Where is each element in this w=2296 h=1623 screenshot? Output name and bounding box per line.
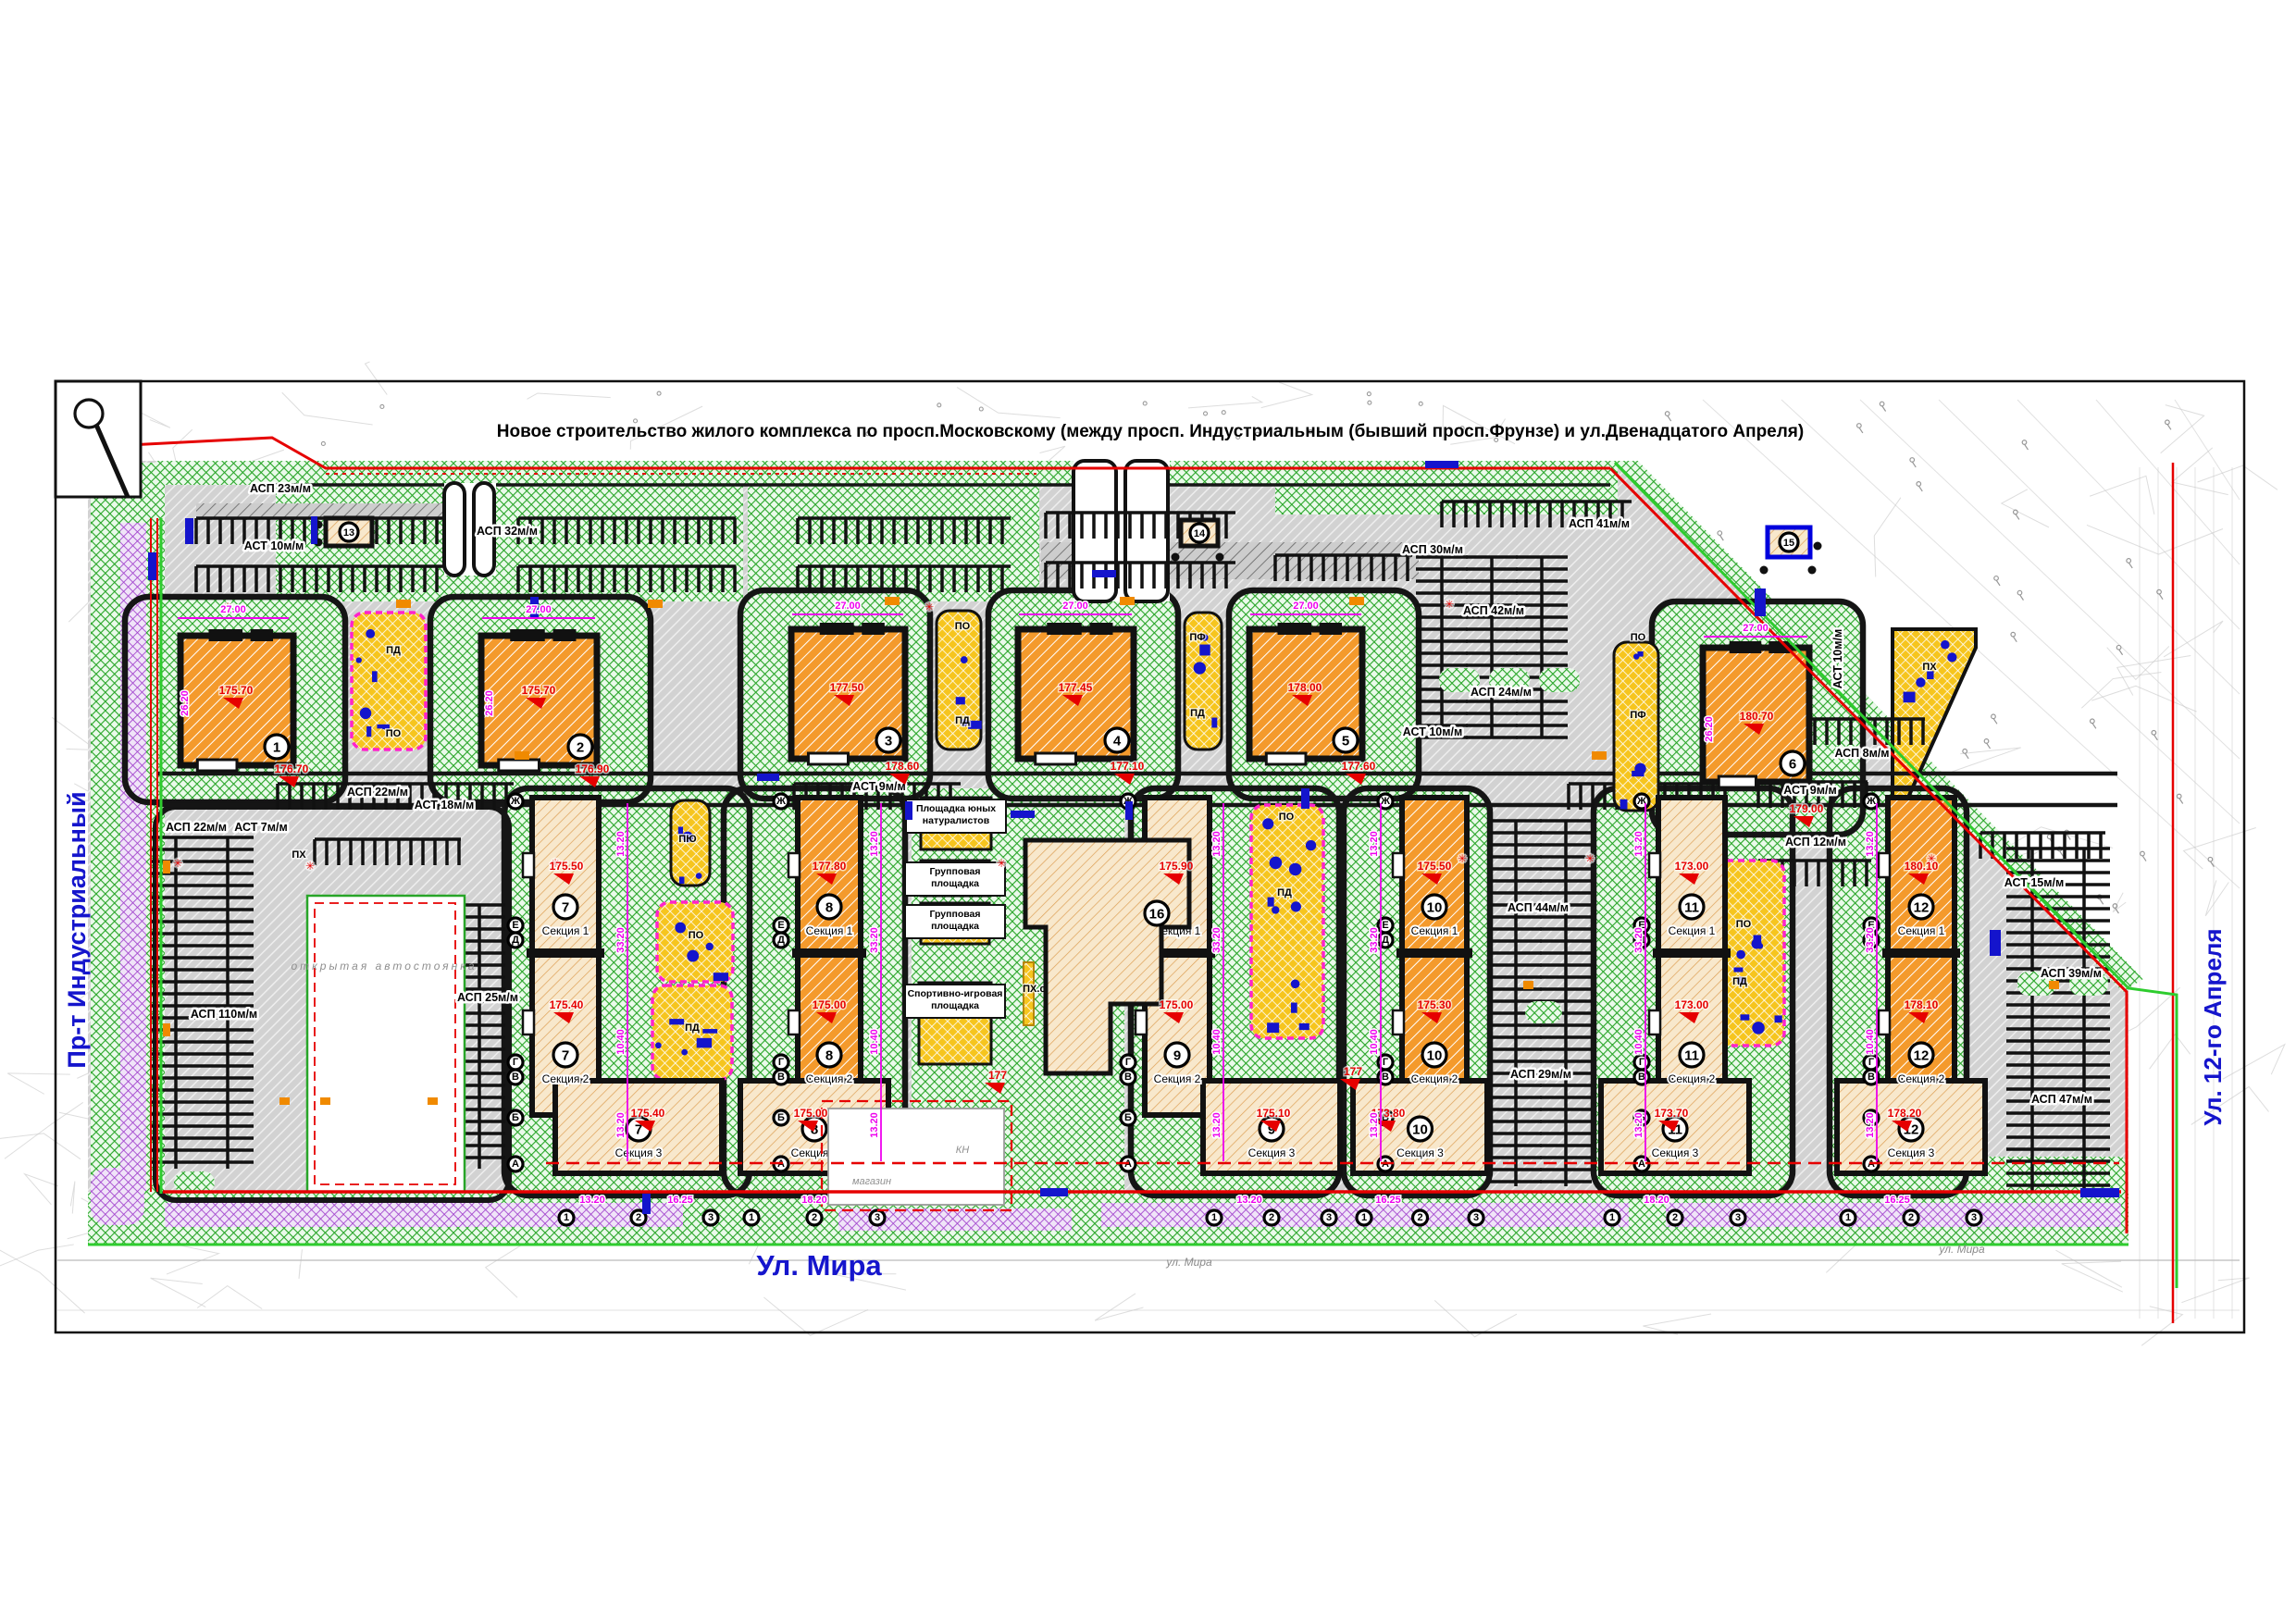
parking-capacity-label: АСП 23м/м: [250, 482, 311, 495]
elevation-mark: 175.30: [1418, 998, 1452, 1011]
dimension-label: 10.40: [1211, 1029, 1222, 1055]
playground-label: натуралистов: [923, 815, 990, 826]
play-equipment-icon: [681, 1049, 688, 1056]
balcony: [788, 853, 800, 877]
elevation-mark: 180.10: [1905, 860, 1939, 873]
play-equipment-icon: [1916, 677, 1925, 687]
building-number: 4: [1113, 733, 1122, 749]
elevation-mark: 176.70: [275, 762, 309, 775]
topo-line: [197, 1286, 262, 1309]
driveway-lane: [1125, 461, 1168, 601]
section-label: Секция 3: [615, 1146, 663, 1159]
dimension-label: 16.25: [1884, 1195, 1910, 1206]
elevation-mark: 177.45: [1059, 681, 1093, 694]
red-asterisk-mark: ✳: [1585, 852, 1595, 865]
section-label: Секция 2: [1411, 1072, 1458, 1085]
topo-line: [1261, 382, 1312, 408]
building-number: Ж: [1866, 796, 1876, 807]
parking-capacity-label: АСП 47м/м: [2031, 1093, 2092, 1106]
elevation-mark: 177.50: [830, 681, 864, 694]
parking-capacity-label: АСП 39м/м: [2041, 967, 2102, 980]
play-equipment-icon: [1211, 718, 1217, 728]
shop-code-label: КН: [956, 1145, 969, 1156]
tree-symbol: [1222, 411, 1225, 415]
plan-title: Новое строительство жилого комплекса по …: [497, 422, 1804, 441]
tree-symbol: [1993, 718, 1997, 724]
topo-line: [2172, 448, 2228, 495]
playground-tag: ПО: [386, 728, 402, 739]
building-number: Е: [512, 920, 518, 931]
dimension-label: 13.20: [1369, 1112, 1380, 1138]
tree-symbol: [2127, 559, 2131, 564]
building-number: 2: [1908, 1212, 1914, 1223]
section-label: Секция 3: [1248, 1146, 1296, 1159]
tree-symbol: [2092, 723, 2096, 728]
playground-tag: ПО: [1736, 919, 1752, 930]
dimension-label: 13.20: [1369, 831, 1380, 857]
play-equipment-icon: [1633, 653, 1639, 659]
building-number: 10: [1412, 1121, 1428, 1137]
blue-marker: [1425, 461, 1458, 468]
dimension-label: 13.20: [869, 831, 880, 857]
dimension-label: 13.20: [1633, 831, 1644, 857]
open-parking-lot: [307, 896, 465, 1192]
parking-capacity-label: АСП 41м/м: [1569, 517, 1630, 530]
building-number: 1: [1211, 1212, 1217, 1223]
topo-line: [2113, 893, 2126, 912]
orange-marker: [2049, 981, 2059, 989]
play-equipment-icon: [1941, 640, 1950, 650]
playground-tag: ПФ: [1189, 632, 1205, 643]
blue-marker: [905, 801, 912, 820]
building-number: 9: [1173, 1047, 1181, 1063]
dimension-label: 33.20: [869, 927, 880, 953]
blue-marker: [185, 518, 193, 544]
play-equipment-icon: [1632, 771, 1644, 776]
building-number: 7: [562, 1047, 569, 1063]
topo-line: [151, 1278, 206, 1307]
building-number: 3: [1326, 1212, 1332, 1223]
play-equipment-icon: [1736, 950, 1745, 960]
play-equipment-icon: [697, 1038, 712, 1048]
dimension-label: 33.20: [1865, 927, 1876, 953]
topo-line: [2087, 525, 2223, 554]
playground-label: Спортивно-игровая: [908, 988, 1003, 999]
orange-marker: [163, 861, 170, 873]
topo-line: [2062, 1261, 2123, 1292]
play-equipment-icon: [968, 721, 982, 729]
sidewalk-purple: [165, 1203, 683, 1227]
blue-marker: [311, 516, 317, 544]
playground-label: Площадка юных: [916, 803, 996, 814]
building-entrance: [1278, 623, 1312, 635]
red-asterisk-mark: ✳: [1445, 598, 1454, 611]
play-equipment-icon: [956, 697, 965, 704]
parking-capacity-label: АСП 22м/м: [166, 821, 227, 834]
topo-line: [70, 1182, 75, 1214]
building-number: В: [777, 1072, 785, 1083]
topo-line: [957, 388, 1060, 418]
building-number: В: [1868, 1072, 1875, 1083]
building-number: 6: [1789, 756, 1796, 772]
building-entrance: [251, 629, 273, 641]
tree-symbol: [2159, 594, 2163, 600]
topo-line: [1095, 1294, 1143, 1320]
orange-marker: [428, 1097, 438, 1105]
dimension-label: 10.40: [615, 1029, 627, 1055]
elevation-mark: 175.70: [522, 684, 556, 697]
play-equipment-icon: [1733, 967, 1743, 972]
building-number: 10: [1427, 1047, 1443, 1063]
tree-symbol: [1419, 402, 1422, 405]
dimension-label: 27.00: [220, 604, 246, 615]
tree-symbol: [2011, 632, 2016, 637]
playground: [1251, 805, 1323, 1038]
elevation-mark: 178.20: [1888, 1107, 1922, 1120]
topo-line: [2081, 672, 2161, 708]
parking-capacity-label: АСТ 9м/м: [1783, 784, 1836, 797]
elevation-mark: 179.00: [1790, 802, 1824, 815]
building-number: Г: [1868, 1057, 1875, 1068]
red-asterisk-mark: ✳: [1458, 852, 1467, 865]
play-equipment-icon: [366, 629, 375, 638]
orange-marker: [163, 1023, 170, 1036]
topo-line: [2198, 465, 2277, 489]
section-label: Секция 1: [1898, 924, 1945, 937]
tree-symbol: [2142, 856, 2146, 861]
building-number: Б: [777, 1112, 785, 1123]
building-entrance: [1730, 641, 1762, 653]
building-number: 2: [577, 739, 584, 755]
building-porch: [197, 760, 237, 771]
playground-label: площадка: [931, 1000, 979, 1011]
parking-capacity-label: АСТ 18м/м: [415, 799, 474, 811]
playground-label: площадка: [931, 878, 979, 889]
building-number: 3: [1735, 1212, 1741, 1223]
orange-marker: [1349, 597, 1364, 605]
play-equipment-icon: [714, 973, 728, 981]
parking-capacity-label: АСТ 7м/м: [234, 821, 287, 834]
play-equipment-icon: [372, 671, 378, 682]
building-porch: [1036, 753, 1076, 764]
red-asterisk-mark: ✳: [997, 857, 1006, 870]
balcony: [523, 1010, 534, 1035]
play-equipment-icon: [655, 1042, 662, 1048]
dimension-label: 13.20: [1211, 831, 1222, 857]
building-number: 8: [825, 1047, 833, 1063]
building-number: Б: [1124, 1112, 1132, 1123]
play-equipment-icon: [1262, 818, 1273, 829]
building-number: 12: [1914, 1047, 1930, 1063]
building-number: Д: [777, 935, 785, 946]
play-equipment-icon: [366, 726, 371, 737]
building-number: 7: [562, 899, 569, 915]
site-plan: Площадка юныхнатуралистовГрупповаяплощад…: [0, 0, 2296, 1623]
playground-tag: ПД: [1732, 976, 1747, 987]
dimension-label: 16.25: [1375, 1195, 1401, 1206]
elevation-mark: 175.40: [550, 998, 584, 1011]
play-equipment-icon: [1268, 898, 1274, 907]
elevation-mark: 175.00: [794, 1107, 828, 1120]
playground: [1614, 642, 1658, 811]
building-number: Г: [778, 1057, 785, 1068]
topo-line: [282, 392, 373, 425]
elevation-mark: 180.70: [1740, 710, 1774, 723]
topo-line: [2055, 1250, 2121, 1287]
topo-line: [527, 393, 611, 399]
building-number: А: [512, 1158, 519, 1170]
building-entrance: [553, 629, 577, 641]
utility-well: [1760, 566, 1769, 575]
dimension-label: 26.20: [484, 690, 495, 716]
play-equipment-icon: [360, 708, 372, 720]
balcony: [1136, 1010, 1147, 1035]
topo-line: [366, 362, 388, 395]
play-equipment-icon: [1291, 979, 1300, 988]
play-equipment-icon: [1299, 1023, 1309, 1030]
orange-marker: [396, 600, 411, 608]
dimension-label: 33.20: [1633, 927, 1644, 953]
building-number: В: [1638, 1072, 1645, 1083]
elevation-mark: 177: [988, 1069, 1007, 1082]
playground-label: площадка: [931, 921, 979, 932]
blue-marker: [1092, 570, 1116, 577]
dimension-label: 13.20: [1865, 831, 1876, 857]
building-number: Б: [512, 1112, 519, 1123]
building-number: 1: [1361, 1212, 1367, 1223]
tree-symbol: [1859, 427, 1863, 433]
tree-symbol: [2019, 595, 2023, 601]
building-number: 11: [1684, 1047, 1699, 1063]
building-number: 15: [1783, 538, 1794, 549]
generated-plan-graphics: Площадка юныхнатуралистовГрупповаяплощад…: [0, 362, 2285, 1345]
elevation-mark: 173.00: [1675, 860, 1709, 873]
parking-capacity-label: АСП 8м/м: [1834, 747, 1889, 760]
play-equipment-icon: [1947, 652, 1956, 662]
play-equipment-icon: [1289, 863, 1302, 876]
blue-marker: [1301, 788, 1309, 809]
orange-marker: [1523, 981, 1533, 989]
tree-symbol: [1996, 580, 2000, 586]
dimension-label: 18.20: [1644, 1195, 1669, 1206]
building-number: 2: [1417, 1212, 1422, 1223]
tree-symbol: [657, 391, 661, 395]
orange-marker: [279, 1097, 290, 1105]
building-number: 5: [1342, 733, 1349, 749]
building-entrance: [820, 623, 854, 635]
dimension-label: 16.25: [667, 1195, 693, 1206]
parking-capacity-label: АСП 25м/м: [457, 991, 518, 1004]
section-label: Секция 1: [806, 924, 853, 937]
play-equipment-icon: [1291, 901, 1301, 911]
dimension-label: 13.20: [1236, 1195, 1262, 1206]
play-equipment-icon: [1741, 1014, 1750, 1020]
building-number: 3: [708, 1212, 714, 1223]
dimension-label: 33.20: [1369, 927, 1380, 953]
topo-line: [0, 1232, 85, 1313]
topo-line: [2117, 655, 2191, 695]
tree-symbol: [2100, 898, 2104, 904]
building-number: 2: [636, 1212, 641, 1223]
tree-symbol: [1918, 486, 1922, 491]
topo-line: [2002, 489, 2049, 527]
play-equipment-icon: [377, 725, 382, 728]
play-equipment-icon: [1194, 662, 1206, 674]
parking-capacity-label: АСП 32м/м: [477, 525, 538, 538]
tree-symbol: [2177, 794, 2181, 799]
tree-symbol: [2024, 444, 2028, 450]
elevation-mark: 175.10: [1257, 1107, 1291, 1120]
building-number: Г: [1125, 1057, 1132, 1068]
tree-symbol: [1668, 415, 1671, 421]
section-label: Секция 3: [1652, 1146, 1699, 1159]
blue-marker: [1755, 588, 1766, 616]
topo-line: [2181, 1278, 2249, 1303]
tree-symbol: [1984, 739, 1989, 744]
dimension-label: 10.40: [1369, 1029, 1380, 1055]
tree-symbol: [2152, 730, 2156, 735]
tree-symbol: [2166, 420, 2170, 425]
tree-symbol: [1718, 531, 1722, 536]
blue-marker: [2080, 1188, 2119, 1197]
play-equipment-icon: [961, 656, 968, 663]
topo-street-line: [1939, 400, 2240, 694]
play-equipment-icon: [356, 657, 362, 663]
parking-capacity-label: АСП 30м/м: [1402, 543, 1463, 556]
topo-line: [2090, 476, 2154, 514]
dimension-label: 33.20: [1211, 927, 1222, 953]
elevation-mark: 175.00: [813, 998, 847, 1011]
building-number: 2: [812, 1212, 817, 1223]
parking-capacity-label: АСТ 9м/м: [852, 780, 905, 793]
section-label: Секция 2: [1154, 1072, 1201, 1085]
playground-tag: ПО: [1631, 632, 1646, 643]
blue-marker: [1040, 1188, 1068, 1196]
dimension-label: 13.20: [1633, 1112, 1644, 1138]
blue-marker: [1011, 811, 1035, 818]
elevation-mark: 178.00: [1288, 681, 1322, 694]
parking-capacity-label: АСП 24м/м: [1471, 686, 1532, 699]
building-number: 2: [1672, 1212, 1678, 1223]
tree-symbol: [2060, 851, 2064, 857]
play-equipment-icon: [702, 1029, 717, 1034]
play-equipment-icon: [1775, 1015, 1782, 1022]
section-label: Секция 2: [542, 1072, 590, 1085]
driveway-lane: [444, 483, 465, 576]
topo-line: [5, 1102, 83, 1158]
building-number: Ж: [510, 796, 520, 807]
building-porch: [499, 760, 540, 771]
dimension-label: 13.20: [615, 831, 627, 857]
street-bottom-label: Ул. Мира: [756, 1249, 882, 1282]
dimension-label: 13.20: [579, 1195, 605, 1206]
balcony: [788, 1010, 800, 1035]
tree-symbol: [1719, 535, 1723, 540]
tree-symbol: [321, 441, 325, 445]
parking-capacity-label: АСТ 10м/м: [1831, 629, 1844, 688]
section-label: Секция 3: [1888, 1146, 1935, 1159]
building-number: 14: [1194, 528, 1206, 539]
tree-symbol: [1882, 406, 1886, 412]
utility-well: [1808, 566, 1817, 575]
play-equipment-icon: [696, 873, 702, 879]
building-number: Е: [777, 920, 784, 931]
tree-symbol: [1857, 424, 1862, 428]
tree-symbol: [2208, 857, 2213, 861]
tree-symbol: [2179, 799, 2183, 804]
north-arrow-box: [56, 381, 141, 497]
topo-line: [1188, 396, 1262, 407]
building-number: 1: [1845, 1212, 1851, 1223]
parking-capacity-label: АСТ 15м/м: [2004, 876, 2064, 889]
red-asterisk-mark: ✳: [305, 860, 315, 873]
dimension-label: 10.40: [869, 1029, 880, 1055]
building-porch: [1266, 753, 1306, 764]
elevation-mark: 177.10: [1111, 760, 1145, 773]
street-left-label: Пр-т Индустриальный: [63, 791, 91, 1068]
parking-capacity-label: АСП 110м/м: [191, 1008, 257, 1021]
blue-marker: [757, 774, 779, 781]
building-number: 1: [1609, 1212, 1615, 1223]
building-number: 2: [1269, 1212, 1274, 1223]
section-label: Секция 2: [806, 1072, 853, 1085]
tree-symbol: [1987, 743, 1991, 749]
building-number: 16: [1149, 906, 1165, 922]
topo-line: [299, 1249, 302, 1279]
building-number: Д: [512, 935, 519, 946]
dimension-label: 26.20: [180, 690, 191, 716]
open-lot-label: открытая автостоянка: [291, 960, 477, 973]
building-number: 11: [1684, 899, 1699, 915]
tree-symbol: [2116, 645, 2121, 650]
playground: [657, 902, 733, 982]
dimension-label: 10.40: [1865, 1029, 1876, 1055]
balcony: [1649, 853, 1660, 877]
elevation-mark: 177: [1344, 1065, 1362, 1078]
blue-marker: [642, 1194, 651, 1214]
playground-tag: ПХ: [292, 849, 306, 861]
tree-symbol: [1368, 401, 1371, 404]
tree-symbol: [1965, 753, 1968, 759]
building-entrance: [862, 623, 885, 635]
tree-symbol: [2013, 637, 2017, 642]
play-equipment-icon: [1267, 1022, 1279, 1033]
tree-symbol: [2167, 424, 2171, 429]
dimension-label: 33.20: [615, 927, 627, 953]
parking-capacity-label: АСП 44м/м: [1508, 901, 1569, 914]
tree-symbol: [1204, 412, 1208, 415]
tree-symbol: [2157, 589, 2162, 594]
playground-tag: ПО: [1279, 811, 1295, 823]
play-equipment-icon: [1270, 857, 1283, 870]
tree-symbol: [1880, 402, 1884, 406]
play-equipment-icon: [1306, 840, 1316, 850]
orange-marker: [515, 751, 529, 760]
site-plan-sheet: Площадка юныхнатуралистовГрупповаяплощад…: [0, 0, 2296, 1623]
building-number: Г: [1383, 1057, 1389, 1068]
play-equipment-icon: [675, 923, 686, 934]
orange-marker: [648, 600, 663, 608]
tree-symbol: [2017, 590, 2022, 595]
red-asterisk-mark: ✳: [925, 601, 934, 613]
play-equipment-icon: [1757, 943, 1764, 949]
balcony: [1879, 853, 1890, 877]
section-label: Секция 3: [1396, 1146, 1444, 1159]
building-entrance: [1090, 623, 1113, 635]
topo-line: [1874, 498, 1901, 577]
utility-well: [1172, 553, 1180, 562]
section-label: Секция 1: [1669, 924, 1716, 937]
